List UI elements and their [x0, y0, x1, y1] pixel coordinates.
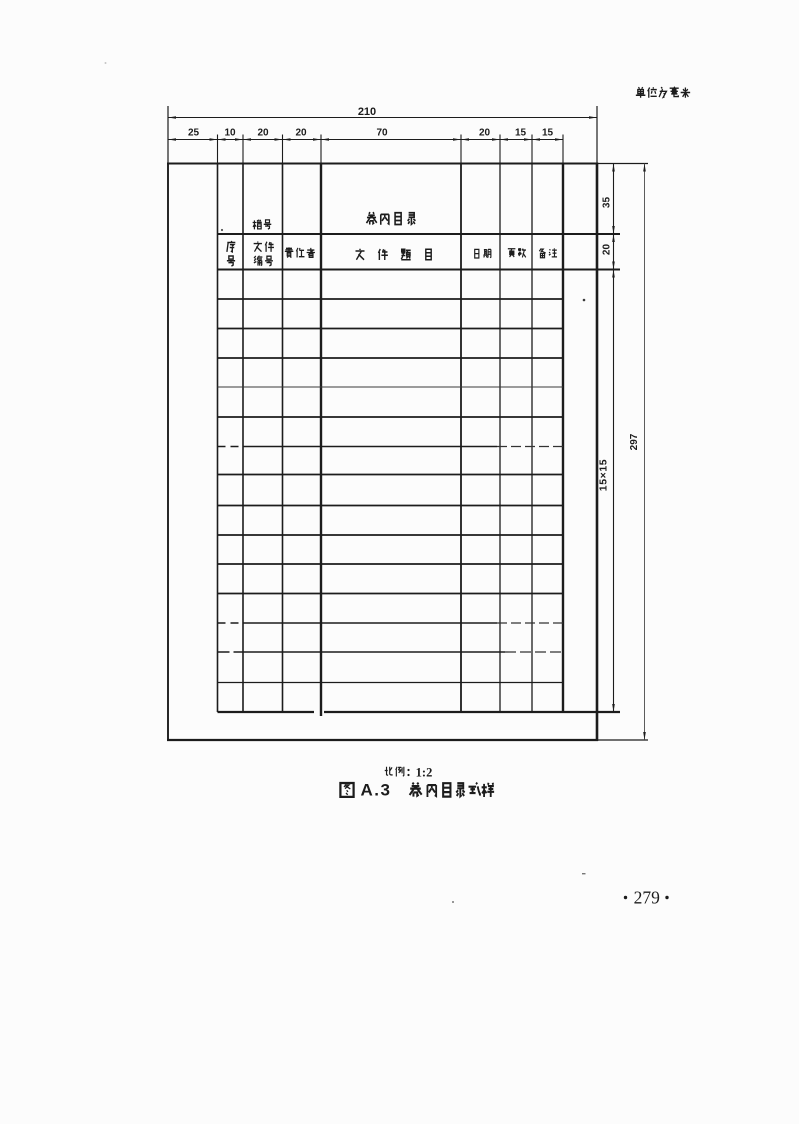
svg-text:15: 15 — [542, 128, 554, 139]
svg-text:15×15: 15×15 — [598, 459, 610, 492]
svg-text:A.3: A.3 — [361, 780, 392, 799]
svg-text:15: 15 — [515, 128, 527, 139]
svg-text:35: 35 — [602, 197, 613, 209]
svg-text:279: 279 — [634, 888, 661, 908]
svg-text:20: 20 — [479, 128, 491, 139]
svg-text:1:2: 1:2 — [416, 765, 433, 779]
svg-text:70: 70 — [376, 128, 388, 139]
svg-text:25: 25 — [188, 128, 200, 139]
svg-text:10: 10 — [224, 128, 236, 139]
svg-text:297: 297 — [629, 433, 640, 450]
svg-text:20: 20 — [295, 128, 307, 139]
svg-text:20: 20 — [602, 244, 613, 256]
svg-text:210: 210 — [358, 106, 376, 118]
svg-text:20: 20 — [257, 128, 269, 139]
